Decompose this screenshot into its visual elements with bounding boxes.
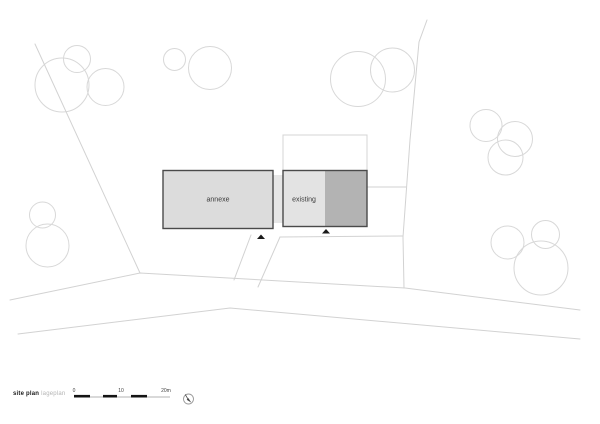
scale-bar-label: 0: [73, 388, 76, 394]
annexe-label: annexe: [207, 197, 230, 204]
tree-canopy: [331, 52, 386, 107]
northwest-boundary-line: [35, 44, 140, 273]
footpath-line: [234, 235, 251, 280]
link-corridor: [273, 175, 284, 223]
drawing-title: site planlageplan: [13, 391, 65, 398]
tree-canopy: [87, 69, 124, 106]
existing-building-right-wing: [325, 171, 367, 227]
tree-canopy: [26, 224, 69, 267]
scale-bar-label: 10: [118, 388, 124, 394]
existing-label: existing: [292, 197, 316, 204]
tree-canopy: [371, 48, 415, 92]
entrance-marker: [257, 235, 265, 240]
driveway-left-line: [258, 237, 280, 287]
tree-canopy: [488, 140, 523, 175]
site-plan-drawing: annexeexisting01020m: [0, 0, 600, 424]
tree-canopy: [189, 47, 232, 90]
tree-canopy: [491, 226, 524, 259]
existing-upper-outline: [283, 135, 367, 171]
drawing-title-secondary: lageplan: [41, 391, 65, 397]
road-upper-edge-line: [10, 273, 580, 310]
tree-canopy: [498, 122, 533, 157]
driveway-top-line: [280, 236, 403, 237]
drawing-title-primary: site plan: [13, 391, 39, 397]
scale-bar-label: 20m: [161, 388, 171, 394]
entrance-marker: [322, 229, 330, 234]
tree-canopy: [532, 221, 560, 249]
site-plan-canvas: annexeexisting01020m site planlageplan: [0, 0, 600, 424]
east-boundary-line: [403, 20, 427, 288]
tree-canopy: [164, 49, 186, 71]
tree-canopy: [514, 241, 568, 295]
north-arrow-needle: [185, 394, 188, 399]
road-lower-edge-line: [18, 308, 580, 339]
